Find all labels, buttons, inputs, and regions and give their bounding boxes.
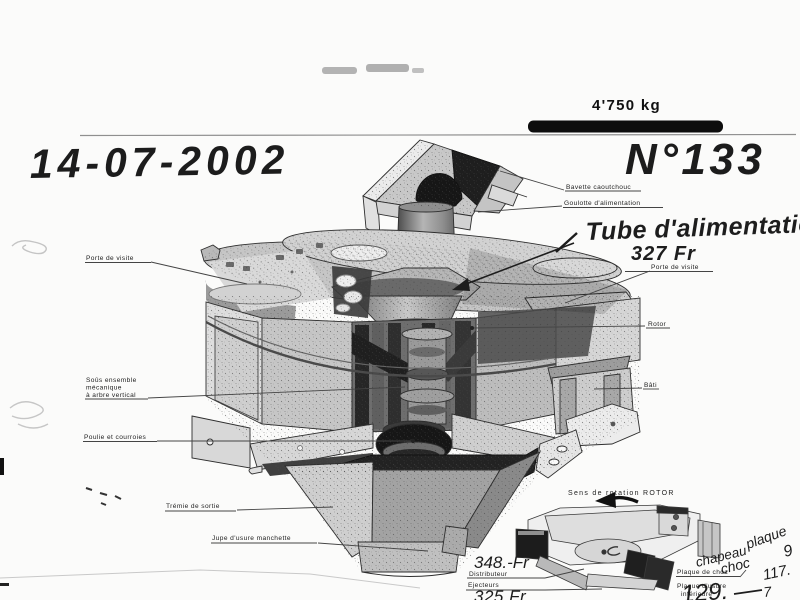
svg-text:N°133: N°133 (625, 135, 765, 184)
svg-text:14-07-2002: 14-07-2002 (29, 136, 289, 187)
svg-text:Soûs ensemble: Soûs ensemble (86, 377, 137, 384)
svg-text:327 Fr: 327 Fr (631, 243, 696, 265)
svg-text:4'750 kg: 4'750 kg (592, 97, 661, 114)
svg-text:117.: 117. (761, 561, 792, 583)
svg-text:Jupe d'usure manchette: Jupe d'usure manchette (212, 535, 291, 542)
svg-text:325 Fr: 325 Fr (474, 587, 527, 600)
svg-text:Bâti: Bâti (644, 382, 657, 389)
svg-text:9: 9 (782, 542, 795, 561)
svg-text:Rotor: Rotor (648, 321, 667, 328)
svg-text:7: 7 (763, 583, 774, 600)
svg-text:348.-Fr: 348.-Fr (474, 553, 530, 572)
svg-text:Bavette caoutchouc: Bavette caoutchouc (566, 184, 631, 191)
svg-text:à arbre vertical: à arbre vertical (86, 392, 136, 399)
svg-text:129.: 129. (681, 578, 729, 600)
svg-text:mécanique: mécanique (86, 385, 122, 392)
svg-text:Distributeur: Distributeur (469, 571, 508, 578)
svg-text:Poulie et courroies: Poulie et courroies (84, 434, 147, 441)
svg-text:Trémie de sortie: Trémie de sortie (166, 503, 220, 510)
svg-text:Porte de visite: Porte de visite (651, 264, 699, 271)
svg-text:Porte de visite: Porte de visite (86, 255, 134, 262)
svg-text:Tube d'alimentation: Tube d'alimentation (585, 209, 800, 246)
svg-text:Goulotte d'alimentation: Goulotte d'alimentation (564, 200, 640, 207)
